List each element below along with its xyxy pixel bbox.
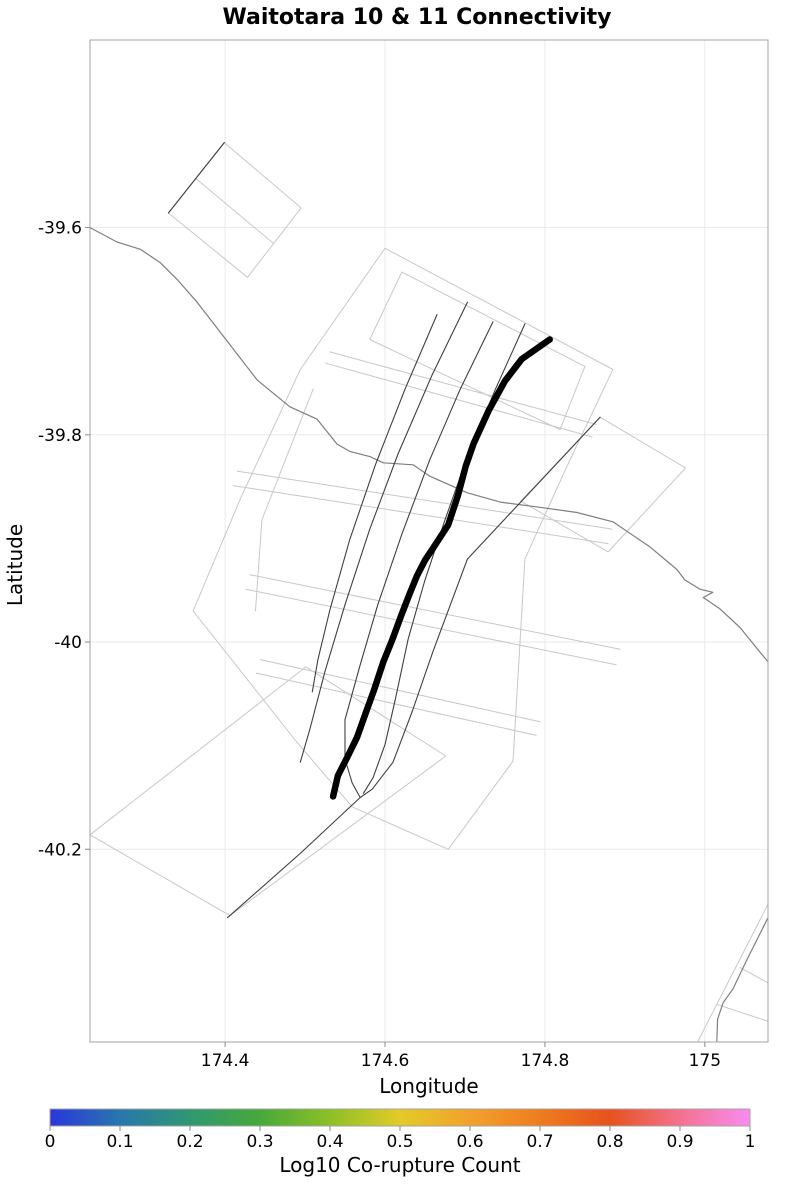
y-tick-label: -40	[54, 633, 82, 653]
colorbar-tick-label: 0.8	[596, 1132, 623, 1152]
colorbar-tick-label: 0.6	[456, 1132, 483, 1152]
plot-area	[90, 40, 768, 1042]
y-tick-label: -40.2	[38, 840, 82, 860]
colorbar-tick-label: 0	[45, 1132, 56, 1152]
y-axis-label: Latitude	[3, 524, 27, 606]
colorbar-tick-label: 0.3	[246, 1132, 273, 1152]
colorbar-tick-label: 0.2	[176, 1132, 203, 1152]
connectivity-map-figure: Waitotara 10 & 11 Connectivity 174.4174.…	[0, 0, 800, 1189]
colorbar-tick-label: 1	[745, 1132, 756, 1152]
colorbar-label: Log10 Co-rupture Count	[279, 1153, 520, 1177]
y-tick-label: -39.6	[38, 219, 82, 239]
x-tick-label: 174.8	[521, 1051, 570, 1071]
chart-title: Waitotara 10 & 11 Connectivity	[223, 5, 612, 30]
y-tick-label: -39.8	[38, 426, 82, 446]
x-tick-label: 174.4	[201, 1051, 250, 1071]
x-tick-label: 174.6	[361, 1051, 410, 1071]
colorbar-ticks-and-labels: 00.10.20.30.40.50.60.70.80.91	[45, 1126, 756, 1152]
colorbar-tick-label: 0.9	[666, 1132, 693, 1152]
colorbar	[50, 1109, 750, 1126]
x-axis-label: Longitude	[379, 1074, 478, 1098]
colorbar-tick-label: 0.7	[526, 1132, 553, 1152]
colorbar-tick-label: 0.5	[386, 1132, 413, 1152]
colorbar-tick-label: 0.4	[316, 1132, 343, 1152]
x-tick-label: 175	[689, 1051, 721, 1071]
colorbar-tick-label: 0.1	[106, 1132, 133, 1152]
